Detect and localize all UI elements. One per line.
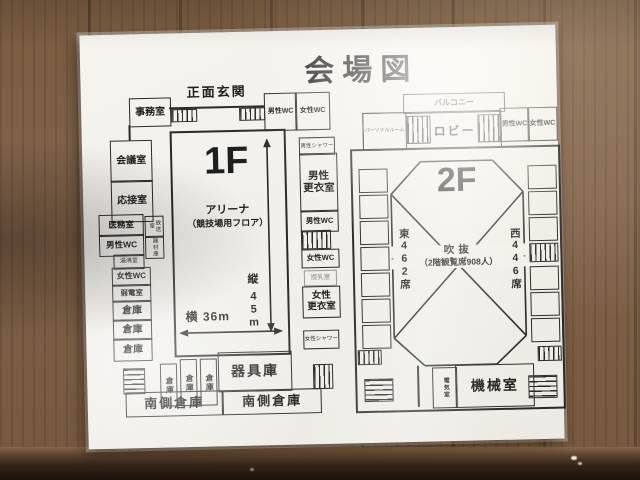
label: 男性WC: [502, 120, 528, 128]
baseboard-plank: [0, 447, 640, 480]
main-entrance-label: 正面玄関: [177, 84, 257, 100]
seat-block: [359, 194, 389, 219]
room-storage-3: 倉庫: [113, 338, 153, 362]
atrium-line: [492, 159, 523, 192]
room-womens-shower: 女性シャワー: [303, 330, 339, 350]
seat-block: [360, 220, 390, 245]
atrium-line: [394, 338, 425, 367]
room-broadcast: 放送室: [144, 216, 163, 237]
label: 医務室: [108, 220, 134, 230]
label: バルコニー: [434, 98, 474, 108]
room-equipment-store: 器具庫: [218, 351, 293, 393]
room-personal: パーソナルルーム: [362, 112, 407, 151]
stairs-hatch-2f-southeast: [528, 375, 558, 399]
room-mens-locker: 男性 更衣室: [299, 153, 338, 213]
label: 倉庫: [123, 344, 143, 356]
corridor-wall: [128, 125, 130, 140]
label: 器具庫: [231, 363, 279, 380]
label: 授乳室: [311, 274, 331, 282]
width-arrow: [178, 325, 284, 339]
stairs-hatch-2f-southwest-upper: [358, 350, 382, 366]
seat-block: [361, 298, 391, 323]
seat-block: [362, 324, 392, 349]
label: 女性WC: [117, 272, 147, 282]
label: 女性WC: [300, 107, 326, 115]
floor-2f-label: 2F: [418, 160, 495, 200]
stairs-hatch-lobby-right: [477, 114, 502, 143]
label: 会議室: [116, 155, 146, 167]
arrow-head: [179, 329, 188, 336]
room-mens-wc-1f-top: 男性WC: [264, 93, 298, 132]
seat-block: [360, 246, 390, 271]
label: 男性WC: [106, 240, 137, 250]
label: 女性WC: [530, 120, 556, 128]
seat-block: [530, 292, 560, 317]
room-office-label: 事務室: [135, 106, 165, 118]
room-meeting: 会議室: [110, 140, 153, 183]
label: 応接室: [117, 195, 147, 207]
seat-block: [527, 165, 557, 190]
paper-map: 会場図 事務室 正面玄関 男性WC 女性WC 1F アリーナ （競技場用フロア）…: [79, 25, 564, 450]
seat-block: [530, 266, 560, 291]
arrow-line: [267, 146, 271, 324]
label: 倉庫: [122, 324, 142, 336]
page-title: 会場図: [276, 43, 447, 91]
atrium-line: [496, 335, 527, 364]
label: パーソナルルーム: [365, 128, 405, 134]
stairs-hatch-2f-west: [529, 243, 558, 263]
arrow-line: [186, 331, 276, 333]
stairs-hatch-lobby-left: [406, 116, 431, 145]
west-seats-label: 西446席: [507, 225, 522, 291]
label: 倉庫: [184, 373, 193, 391]
stairs-hatch-1f-east: [301, 230, 331, 250]
label: 倉庫: [122, 305, 142, 317]
stairs-hatch-2f-southwest: [364, 378, 394, 402]
entrance-steps-hatch: [239, 107, 265, 121]
label: 電気室: [441, 377, 448, 398]
lobby-label: ロビー: [430, 122, 478, 141]
seat-block: [528, 191, 558, 216]
stairs-hatch-1f-southwest: [123, 368, 146, 394]
label: 放送室: [148, 217, 161, 236]
label: 男性WC: [306, 217, 334, 226]
seat-block: [361, 272, 391, 297]
depth-value: 45m: [245, 289, 262, 329]
glare-speck: [578, 462, 582, 465]
label: 湯沸室: [120, 258, 138, 265]
label: 機械室: [471, 377, 519, 394]
room-womens-wc-2f: 女性WC: [527, 107, 558, 142]
room-electrical: 電気室: [432, 367, 458, 409]
stairs-hatch-1f-southeast: [313, 364, 334, 389]
label: 女性WC: [307, 254, 335, 263]
label: 南側倉庫: [144, 396, 204, 412]
room-nursing: 授乳室: [304, 270, 337, 287]
room-office: 事務室: [129, 97, 172, 127]
arrow-head: [263, 138, 271, 147]
label: 弱電室: [120, 289, 143, 298]
width-label: 横 36m: [178, 310, 238, 325]
label: 器材庫: [151, 238, 158, 258]
room-machine: 機械室: [455, 363, 535, 408]
room-womens-wc-1f-top: 女性WC: [295, 92, 331, 131]
atrium-line: [390, 162, 421, 195]
depth-label: 縦: [245, 273, 261, 286]
glare-speck: [571, 456, 577, 460]
label: 南側倉庫: [242, 394, 302, 410]
seat-block: [531, 318, 561, 343]
entrance-steps-hatch: [171, 109, 197, 123]
seat-block: [358, 168, 388, 193]
room-south-storage-2: 南側倉庫: [222, 388, 322, 415]
stairs-hatch-2f-southeast-upper: [538, 346, 562, 362]
label: 男性 更衣室: [303, 170, 335, 194]
label: 女性 更衣室: [307, 291, 336, 313]
label: 女性シャワー: [305, 336, 338, 343]
arrow-head: [274, 327, 283, 334]
label: 男性シャワー: [300, 143, 333, 150]
seat-block: [529, 217, 559, 242]
room-womens-wc-1f-east: 女性WC: [301, 249, 339, 269]
glare-speck: [250, 468, 254, 471]
label: 倉庫: [204, 373, 213, 391]
room-south-storage-1: 南側倉庫: [125, 390, 223, 417]
room-equipment-small: 器材庫: [145, 237, 164, 259]
label: 男性WC: [268, 108, 294, 116]
room-womens-locker: 女性 更衣室: [302, 286, 341, 319]
east-seats-label: 東462席: [396, 226, 411, 292]
room-mens-wc-2f: 男性WC: [499, 107, 530, 142]
